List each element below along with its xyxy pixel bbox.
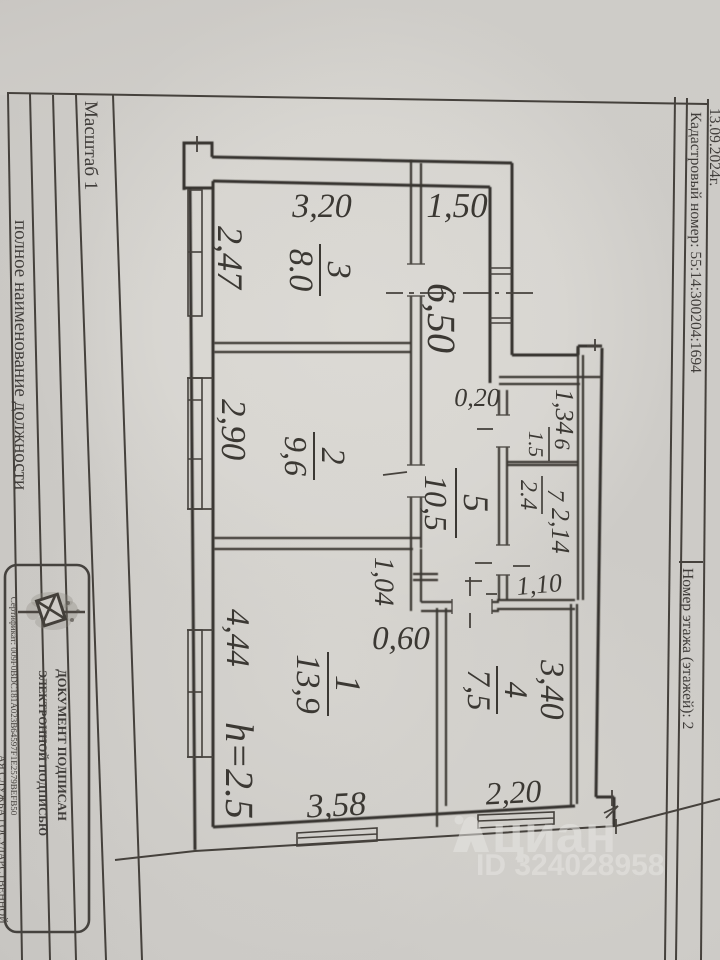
svg-text:4: 4 [497, 682, 533, 699]
svg-text:3,58: 3,58 [305, 785, 367, 825]
svg-text:3: 3 [320, 261, 357, 279]
svg-text:3,40: 3,40 [533, 659, 570, 720]
svg-text:7,5: 7,5 [460, 669, 496, 710]
svg-text:6: 6 [550, 439, 575, 450]
svg-text:ДОКУМЕНТ ПОДПИСАН: ДОКУМЕНТ ПОДПИСАН [55, 669, 69, 821]
svg-text:10,5: 10,5 [418, 475, 454, 531]
svg-text:4,44: 4,44 [219, 609, 255, 667]
svg-text:1.5: 1.5 [524, 431, 548, 457]
svg-text:2,90: 2,90 [214, 399, 253, 461]
svg-text:8.0: 8.0 [282, 249, 319, 292]
svg-text:2: 2 [314, 448, 351, 465]
svg-text:ID 324028958: ID 324028958 [476, 849, 665, 882]
svg-text:0,20: 0,20 [454, 383, 500, 412]
svg-text:ЭЛЕКТРОННОЙ ПОДПИСЬЮ: ЭЛЕКТРОННОЙ ПОДПИСЬЮ [36, 670, 49, 836]
svg-text:2,14: 2,14 [546, 508, 575, 554]
svg-text:0,60: 0,60 [372, 621, 430, 657]
svg-text:Номер этажа (этажей): 2: Номер этажа (этажей): 2 [679, 568, 696, 729]
svg-text:Кадастровый номер: 55:14:30020: Кадастровый номер: 55:14:300204:1694 [687, 112, 704, 373]
svg-text:1,10: 1,10 [515, 568, 563, 601]
svg-text:13,9: 13,9 [289, 654, 326, 714]
svg-text:13.09.2024г.: 13.09.2024г. [706, 108, 720, 186]
svg-text:3,20: 3,20 [291, 188, 352, 225]
svg-text:5: 5 [456, 494, 496, 512]
svg-text:1,04: 1,04 [368, 557, 399, 606]
svg-text:6,50: 6,50 [419, 283, 464, 353]
svg-text:АЯ СЛУЖБА ГОСУДАРСТВЕННОЙ: АЯ СЛУЖБА ГОСУДАРСТВЕННОЙ [0, 755, 8, 924]
svg-text:9,6: 9,6 [278, 436, 314, 476]
svg-text:1,34: 1,34 [550, 389, 579, 435]
svg-text:Масштаб 1: Масштаб 1 [80, 101, 101, 190]
svg-text:1: 1 [328, 675, 368, 693]
svg-text:2,47: 2,47 [210, 226, 250, 291]
svg-text:Сертификат: 009F0BDC181A023B64: Сертификат: 009F0BDC181A023B64597F1E2579… [9, 597, 19, 816]
svg-text:h=2.5: h=2.5 [217, 722, 262, 819]
svg-text:полное наименование должности: полное наименование должности [10, 220, 31, 490]
svg-text:2.4: 2.4 [515, 480, 541, 510]
svg-text:1,50: 1,50 [426, 186, 488, 225]
svg-text:7: 7 [542, 489, 568, 502]
